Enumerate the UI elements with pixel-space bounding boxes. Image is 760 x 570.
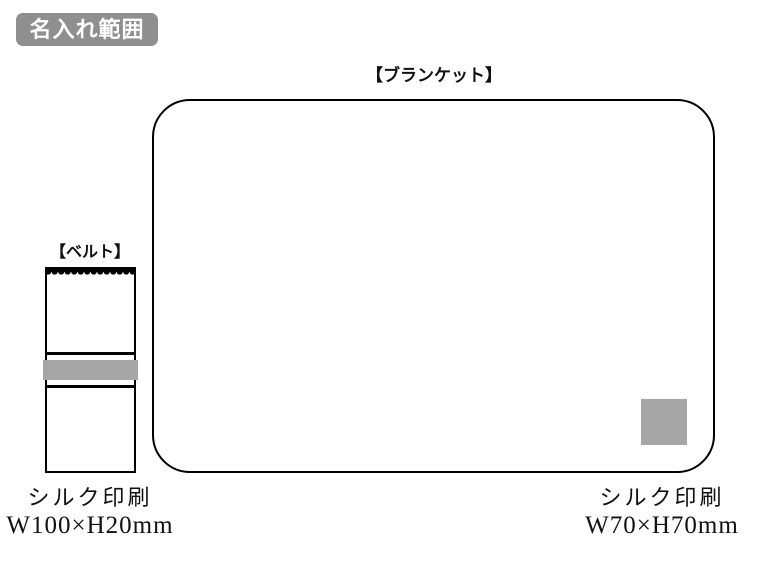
belt-serrated-edge	[45, 267, 136, 277]
belt-stitch-line-lower	[46, 385, 135, 388]
blanket-print-area-square	[641, 399, 687, 445]
blanket-print-method: シルク印刷	[585, 484, 739, 511]
belt-print-area-band	[43, 360, 138, 380]
belt-print-caption: シルク印刷 W100×H20mm	[6, 484, 173, 541]
imprint-range-badge: 名入れ範囲	[16, 13, 158, 46]
blanket-print-size: W70×H70mm	[585, 511, 739, 541]
belt-print-size: W100×H20mm	[6, 511, 173, 541]
imprint-range-diagram: 名入れ範囲 【ブランケット】 【ベルト】 シルク印刷 W100×H20mm シル…	[0, 0, 760, 570]
belt-label: 【ベルト】	[50, 238, 130, 262]
blanket-print-caption: シルク印刷 W70×H70mm	[585, 484, 739, 541]
belt-stitch-line-upper	[46, 352, 135, 355]
blanket-label: 【ブランケット】	[366, 61, 502, 86]
belt-print-method: シルク印刷	[6, 484, 173, 511]
blanket-outline	[152, 99, 715, 473]
